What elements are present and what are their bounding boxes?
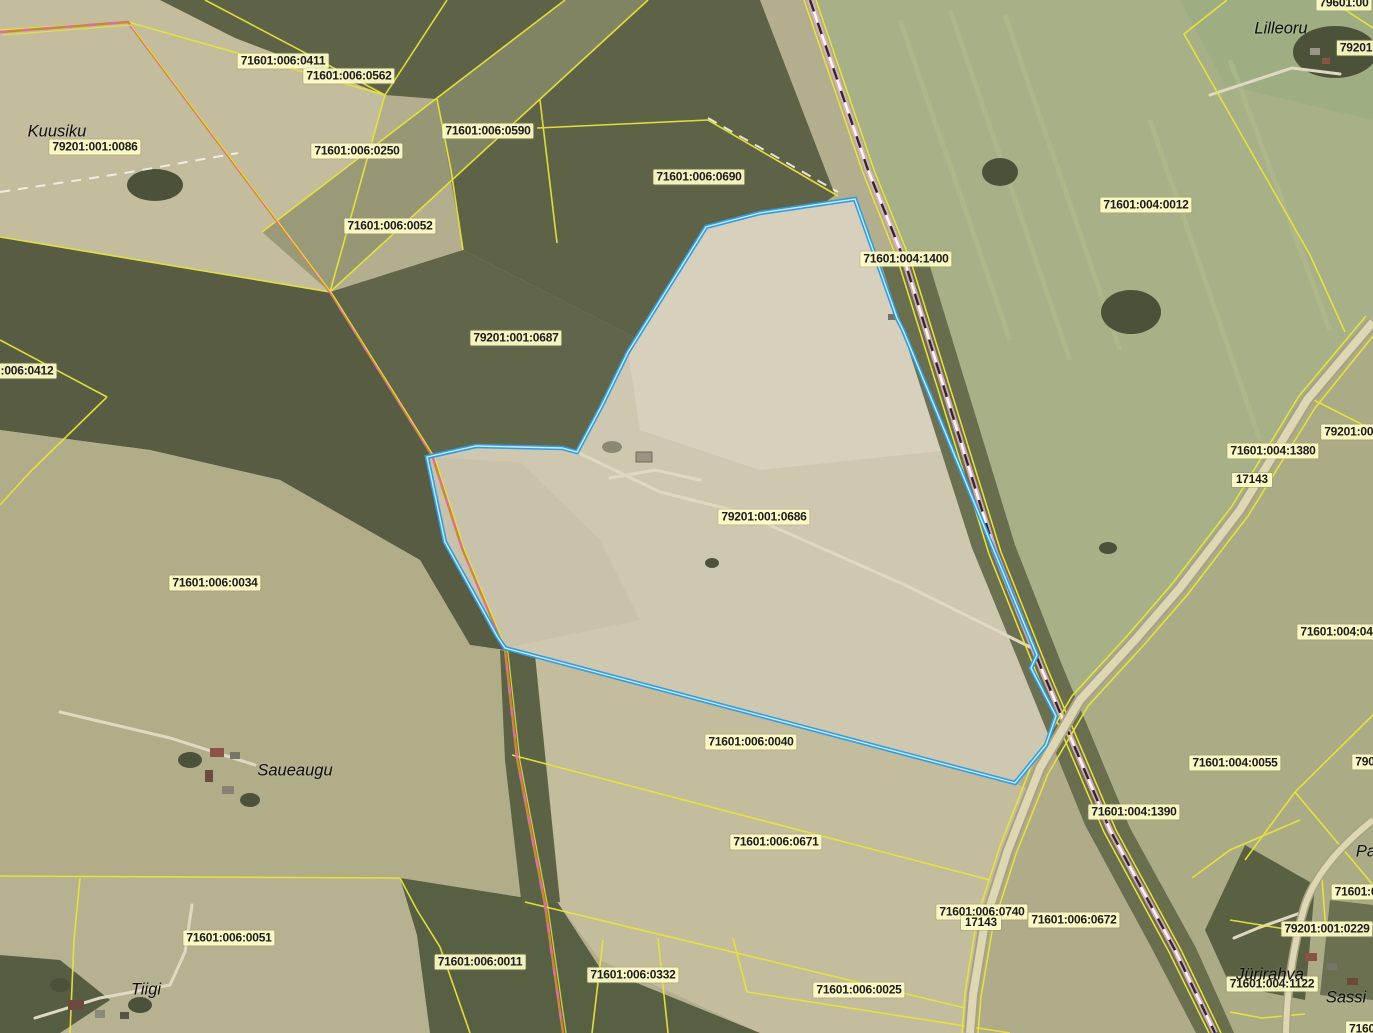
aerial-map-canvas: [0, 0, 1373, 1033]
map-viewport[interactable]: 71601:006:041171601:006:056279201:001:00…: [0, 0, 1373, 1033]
